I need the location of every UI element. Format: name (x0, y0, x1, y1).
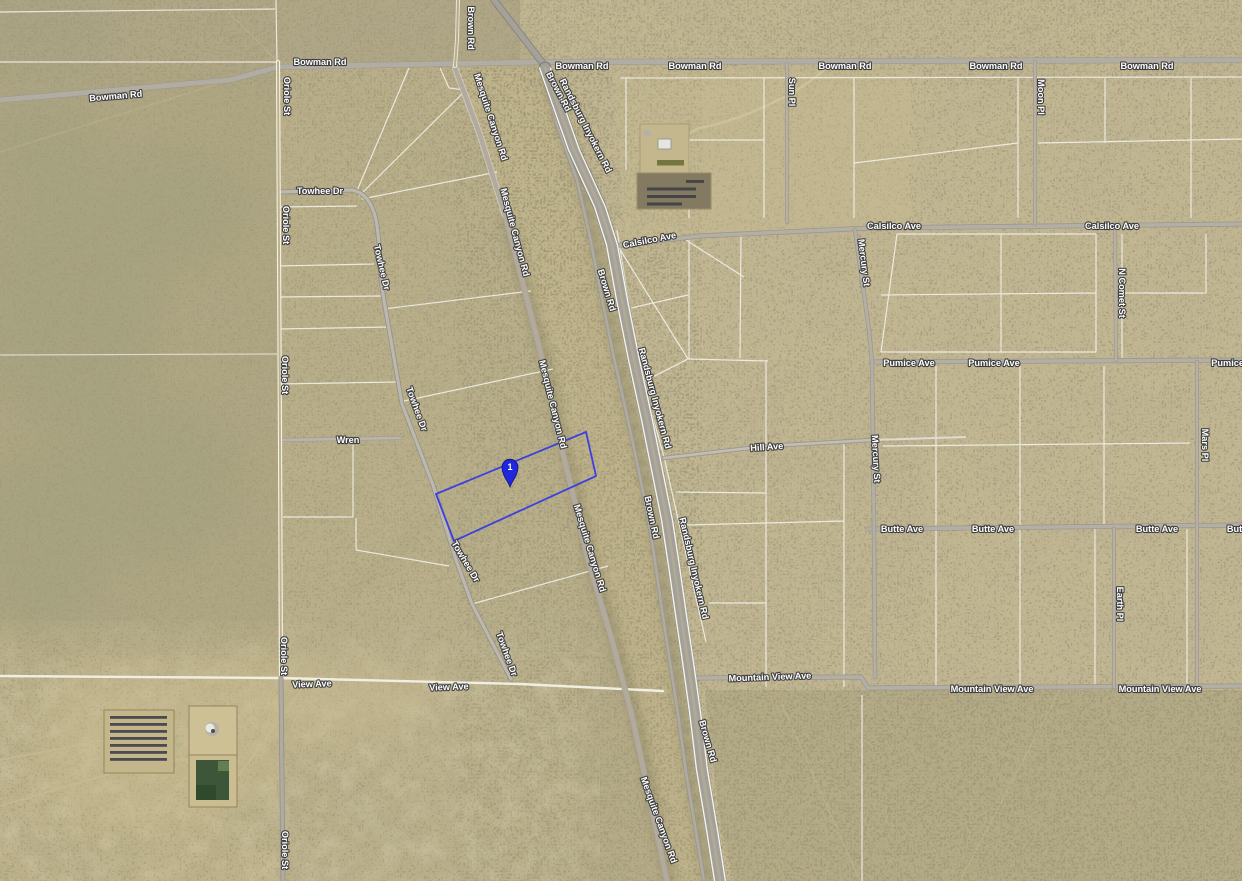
svg-text:Oriole St: Oriole St (281, 206, 291, 244)
svg-text:Oriole St: Oriole St (282, 77, 292, 115)
svg-text:Brown Rd: Brown Rd (466, 6, 476, 49)
svg-text:Butte Ave: Butte Ave (1136, 524, 1178, 534)
svg-text:Bowman Rd: Bowman Rd (1120, 61, 1173, 71)
svg-text:Oriole St: Oriole St (280, 356, 290, 394)
svg-text:Mountain View Ave: Mountain View Ave (1119, 684, 1202, 694)
svg-text:View Ave: View Ave (429, 681, 469, 692)
svg-text:Calsilco Ave: Calsilco Ave (867, 221, 921, 231)
svg-text:Oriole St: Oriole St (279, 637, 289, 675)
svg-text:Bowman Rd: Bowman Rd (818, 61, 871, 71)
svg-text:Sun Pl: Sun Pl (787, 78, 797, 107)
svg-text:Mars Pl: Mars Pl (1200, 429, 1210, 462)
svg-text:Pumice Ave: Pumice Ave (968, 358, 1019, 368)
svg-text:Pumice Ave: Pumice Ave (883, 358, 934, 368)
svg-text:Calsilco Ave: Calsilco Ave (1085, 221, 1139, 231)
svg-text:Pumice Ave: Pumice Ave (1211, 358, 1242, 368)
svg-text:Oriole St: Oriole St (280, 831, 290, 869)
svg-text:1: 1 (507, 462, 512, 472)
svg-text:Moon Pl: Moon Pl (1036, 79, 1046, 115)
svg-text:Bowman Rd: Bowman Rd (555, 61, 608, 71)
svg-text:Mountain View Ave: Mountain View Ave (951, 684, 1034, 694)
svg-text:Butte Ave: Butte Ave (1227, 524, 1242, 534)
svg-text:Wren: Wren (337, 435, 360, 445)
svg-text:Bowman Rd: Bowman Rd (668, 61, 721, 71)
svg-text:N Comet St: N Comet St (1117, 268, 1127, 318)
svg-text:View Ave: View Ave (292, 678, 332, 689)
svg-text:Butte Ave: Butte Ave (972, 524, 1014, 534)
svg-text:Butte Ave: Butte Ave (881, 524, 923, 534)
svg-text:Earth Pl: Earth Pl (1115, 587, 1125, 622)
svg-text:Towhee Dr: Towhee Dr (297, 186, 344, 196)
svg-text:Bowman Rd: Bowman Rd (969, 61, 1022, 71)
svg-text:Bowman Rd: Bowman Rd (293, 57, 346, 67)
